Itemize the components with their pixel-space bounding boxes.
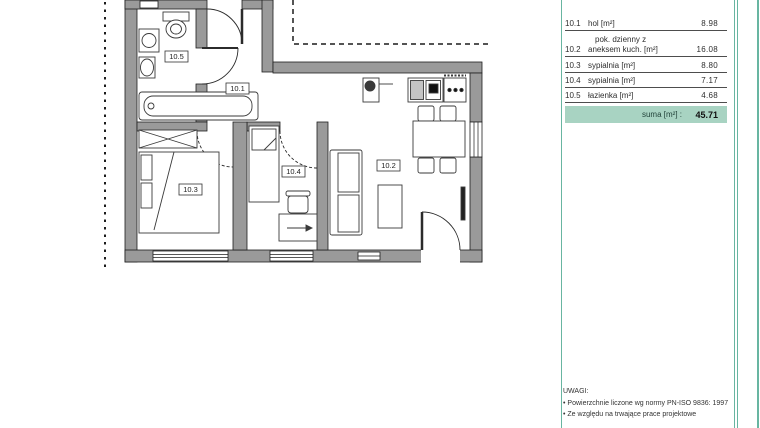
room-area: 16.08 (676, 45, 727, 55)
area-row-hol: 10.1 hol [m²] 8.98 (565, 14, 727, 31)
sum-value: 45.71 (682, 110, 727, 120)
washbasin (139, 57, 155, 78)
room-name: hol [m²] (588, 19, 676, 29)
room-area: 4.68 (676, 91, 727, 101)
area-table: 10.1 hol [m²] 8.98 10.2 pok. dzienny zan… (565, 14, 727, 123)
entrance-door (207, 9, 242, 44)
bedroom4-door (280, 131, 317, 168)
wardrobe (139, 130, 197, 148)
window-right (470, 122, 482, 157)
room-area: 8.80 (676, 61, 727, 71)
bathtub (139, 92, 258, 120)
area-row-sypialnia-2: 10.4 sypialnia [m²] 7.17 (565, 73, 727, 88)
wall-room4-living (317, 122, 328, 250)
area-row-lazienka: 10.5 łazienka [m²] 4.68 (565, 88, 727, 103)
notes-title: UWAGI: (563, 387, 735, 397)
room-label-10-1: 10.1 (226, 83, 249, 94)
cabinet (378, 185, 402, 228)
wall-top-a (125, 0, 207, 9)
frame-line-right (757, 0, 759, 428)
frame-line-left (561, 0, 562, 428)
svg-text:10.4: 10.4 (286, 167, 301, 176)
room-name: sypialnia [m²] (588, 76, 676, 86)
wall-right-upper (470, 73, 482, 122)
wall-bath-right-upper (196, 9, 207, 48)
room-label-10-5: 10.5 (165, 51, 188, 62)
single-bed (249, 126, 279, 202)
dashed-outline (293, 0, 490, 44)
room-area: 8.98 (676, 19, 727, 29)
svg-text:10.3: 10.3 (183, 185, 198, 194)
frame-line-inner-2 (737, 0, 738, 428)
radiator (461, 187, 465, 220)
room-name: pok. dzienny zaneksem kuch. [m²] (588, 35, 676, 55)
room-area: 7.17 (676, 76, 727, 86)
dining-table (413, 106, 465, 173)
room-number: 10.1 (565, 19, 588, 29)
room-name-line2: aneksem kuch. [m²] (588, 45, 658, 54)
room-name: sypialnia [m²] (588, 61, 676, 71)
desk (279, 214, 317, 241)
note-item-2: • Ze względu na trwające prace projektow… (563, 410, 735, 420)
washing-machine (139, 29, 159, 52)
note-item-1: • Powierzchnie liczone wg normy PN-ISO 9… (563, 399, 735, 409)
svg-text:10.2: 10.2 (381, 161, 396, 170)
svg-text:10.1: 10.1 (230, 84, 245, 93)
stove (444, 76, 466, 103)
wall-room3-room4 (233, 122, 247, 250)
wall-left (125, 0, 137, 262)
room-number: 10.4 (565, 76, 588, 86)
area-row-pok-dzienny: 10.2 pok. dzienny zaneksem kuch. [m²] 16… (565, 31, 727, 57)
room-number: 10.2 (565, 45, 588, 55)
drawing-sheet: 10.1 10.2 10.3 10.4 10.5 10.1 (0, 0, 760, 428)
room-label-10-3: 10.3 (179, 184, 202, 195)
frame-line-inner (734, 0, 735, 428)
desk-chair (286, 191, 310, 213)
boiler-unit (363, 78, 393, 102)
svg-text:10.5: 10.5 (169, 52, 184, 61)
window-bottom-2 (270, 251, 313, 261)
toilet (163, 12, 189, 38)
room-name-line1: pok. dzienny z (588, 35, 676, 45)
sum-label: suma [m²] : (642, 110, 682, 119)
bathroom-door (202, 48, 238, 84)
balcony-door (421, 212, 460, 263)
sum-row: suma [m²] : 45.71 (565, 106, 727, 123)
area-row-sypialnia-1: 10.3 sypialnia [m²] 8.80 (565, 57, 727, 73)
kitchen-sink-counter (408, 78, 443, 102)
window-bottom-3 (358, 252, 380, 260)
room-label-10-2: 10.2 (377, 160, 400, 171)
room-number: 10.5 (565, 91, 588, 101)
room-number: 10.3 (565, 61, 588, 71)
notes-block: UWAGI: • Powierzchnie liczone wg normy P… (563, 387, 735, 420)
window-bottom-1 (153, 251, 228, 261)
wall-corner (262, 0, 273, 72)
room-name: łazienka [m²] (588, 91, 676, 101)
wall-kitchen-top (273, 62, 482, 73)
wall-right-lower (470, 157, 482, 262)
sofa (330, 150, 362, 235)
window-top-vent (140, 1, 158, 8)
room-label-10-4: 10.4 (282, 166, 305, 177)
